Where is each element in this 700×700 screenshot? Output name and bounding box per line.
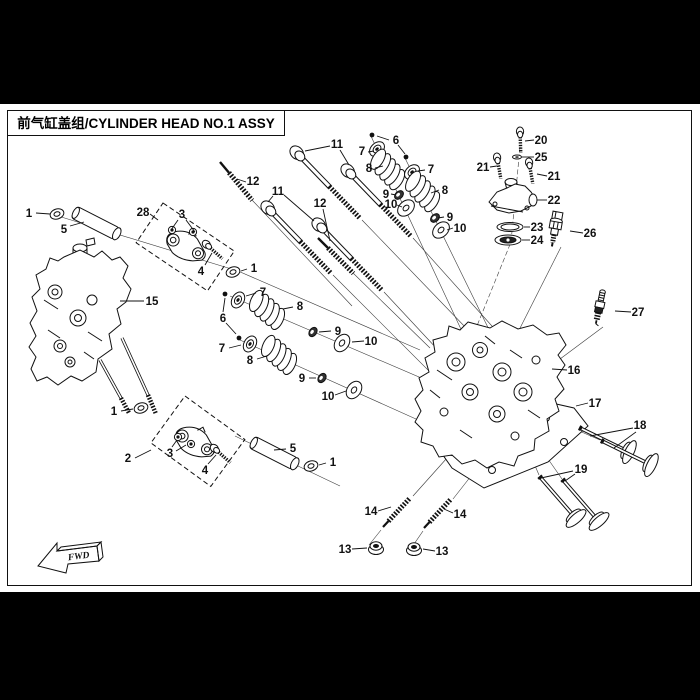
- part-number-14: 14: [454, 509, 467, 521]
- thermostat: [495, 235, 521, 245]
- part-number-23: 23: [531, 222, 544, 234]
- adjuster-nut: [187, 440, 194, 447]
- part-number-10: 10: [365, 336, 378, 348]
- part-number-11: 11: [272, 186, 285, 198]
- part-number-5: 5: [61, 224, 68, 236]
- part-number-22: 22: [548, 195, 561, 207]
- part-number-7: 7: [359, 146, 365, 158]
- part-number-5: 5: [290, 443, 297, 455]
- part-number-7: 7: [428, 164, 434, 176]
- part-number-14: 14: [365, 506, 378, 518]
- part-number-10: 10: [322, 391, 335, 403]
- part-number-8: 8: [366, 163, 373, 175]
- part-number-4: 4: [202, 465, 209, 477]
- part-number-2: 2: [125, 453, 131, 465]
- adjuster-nut: [174, 433, 181, 440]
- catalog-page: { "title_bar": { "title": "前气缸盖组/CYLINDE…: [0, 0, 700, 700]
- part-number-17: 17: [589, 398, 602, 410]
- part-number-12: 12: [247, 176, 260, 188]
- part-number-9: 9: [447, 212, 453, 224]
- part-number-27: 27: [632, 307, 645, 319]
- part-number-1: 1: [26, 208, 33, 220]
- part-number-8: 8: [247, 355, 254, 367]
- page-title: 前气缸盖组/CYLINDER HEAD NO.1 ASSY: [17, 115, 275, 131]
- adjuster-nut: [168, 226, 175, 233]
- valve-keeper: [404, 155, 409, 160]
- part-number-24: 24: [531, 235, 544, 247]
- part-number-19: 19: [575, 464, 588, 476]
- exploded-parts-diagram: 前气缸盖组/CYLINDER HEAD NO.1 ASSY: [0, 0, 700, 700]
- part-number-18: 18: [634, 420, 647, 432]
- part-number-21: 21: [548, 171, 561, 183]
- part-number-26: 26: [584, 228, 597, 240]
- part-number-7: 7: [219, 343, 225, 355]
- flange-nut: [369, 542, 384, 555]
- housing-gasket: [497, 223, 523, 232]
- valve-keeper: [370, 133, 375, 138]
- part-number-1: 1: [251, 263, 258, 275]
- flange-nut: [407, 543, 422, 556]
- part-number-6: 6: [393, 135, 399, 147]
- part-number-28: 28: [137, 207, 150, 219]
- valve-keeper: [223, 292, 228, 297]
- part-number-25: 25: [535, 152, 548, 164]
- part-number-1: 1: [330, 457, 337, 469]
- part-number-10: 10: [385, 199, 398, 211]
- part-number-4: 4: [198, 266, 205, 278]
- part-number-7: 7: [260, 287, 266, 299]
- part-number-1: 1: [111, 406, 118, 418]
- valve-keeper: [237, 336, 242, 341]
- part-number-16: 16: [568, 365, 581, 377]
- part-number-3: 3: [179, 209, 185, 221]
- part-number-9: 9: [335, 326, 341, 338]
- part-number-15: 15: [146, 296, 159, 308]
- part-number-11: 11: [331, 139, 344, 151]
- part-number-13: 13: [339, 544, 352, 556]
- small-washer: [513, 155, 522, 159]
- part-number-12: 12: [314, 198, 327, 210]
- part-number-8: 8: [297, 301, 304, 313]
- part-number-8: 8: [442, 185, 449, 197]
- part-number-3: 3: [167, 448, 173, 460]
- part-number-10: 10: [454, 223, 467, 235]
- part-number-20: 20: [535, 135, 548, 147]
- part-number-9: 9: [299, 373, 305, 385]
- part-number-21: 21: [477, 162, 490, 174]
- part-number-6: 6: [220, 313, 226, 325]
- part-number-13: 13: [436, 546, 449, 558]
